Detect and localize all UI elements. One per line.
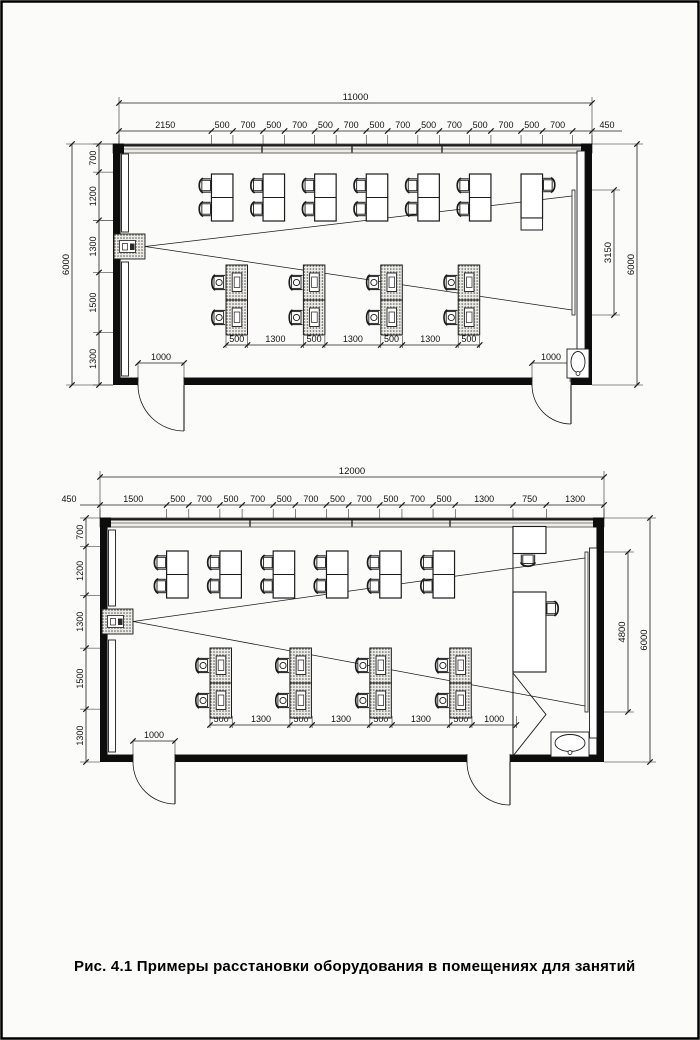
operator-chair [212, 310, 225, 325]
dim-label: 1500 [75, 669, 85, 689]
double-desk [273, 551, 295, 598]
dim-label: 700 [550, 120, 565, 130]
computer-desk [381, 265, 403, 300]
overall-dim-label: 3150 [603, 242, 614, 263]
sink-basin [571, 352, 585, 373]
operator-chair [196, 693, 209, 708]
dim-label: 1500 [88, 293, 98, 313]
dim-label: 700 [410, 494, 425, 504]
computer-desk [303, 300, 325, 335]
operator-chair [276, 658, 289, 673]
dim-label: 1300 [265, 334, 285, 344]
chair [314, 556, 326, 570]
dim-label: 1200 [88, 186, 98, 206]
computer-desk [226, 300, 248, 335]
dim-label: 500 [307, 334, 322, 344]
operator-chair [356, 693, 369, 708]
double-desk [167, 551, 189, 598]
dim-label: 1300 [75, 726, 85, 746]
plan-top-11000: 2150500700500700500700500700500700500700… [61, 92, 643, 431]
chair [421, 579, 433, 593]
dim-label: 700 [447, 120, 462, 130]
double-desk [433, 551, 455, 598]
computer-desk [381, 300, 403, 335]
wall-board [109, 640, 116, 752]
chair [354, 179, 366, 193]
double-desk [326, 551, 348, 598]
chair [208, 579, 220, 593]
chair [406, 202, 418, 216]
dim-label: 500 [461, 334, 476, 344]
dim-label: 1200 [75, 561, 85, 581]
operator-chair [436, 658, 449, 673]
door-arc [532, 385, 571, 424]
dim-label: 500 [330, 494, 345, 504]
dim-label: 700 [292, 120, 307, 130]
operator-chair [212, 275, 225, 290]
dim-label: 1300 [75, 612, 85, 632]
dim-label: 500 [215, 120, 230, 130]
door-arc [467, 762, 510, 805]
projector-lens [130, 244, 135, 251]
overhang-dim-label: 450 [61, 494, 76, 504]
projection-screen [572, 190, 575, 315]
board-right [577, 151, 585, 350]
dim-label: 500 [369, 120, 384, 130]
chair [251, 202, 263, 216]
double-desk [211, 174, 233, 221]
dim-label: 1300 [331, 714, 351, 724]
dim-label: 450 [599, 120, 614, 130]
double-desk [315, 174, 337, 221]
dim-label: 1300 [420, 334, 440, 344]
chair [154, 556, 166, 570]
double-desk [220, 551, 242, 598]
dim-label: 1300 [474, 494, 494, 504]
computer-desk [370, 683, 392, 718]
dim-label: 500 [170, 494, 185, 504]
wall-board [122, 262, 129, 376]
dim-label: 500 [383, 494, 398, 504]
projector-lens [118, 619, 123, 626]
chair [314, 579, 326, 593]
sink-faucet [568, 751, 572, 755]
overall-dim-label: 12000 [339, 466, 365, 477]
chair [261, 556, 273, 570]
chair [261, 579, 273, 593]
dim-label: 500 [524, 120, 539, 130]
computer-desk [450, 683, 472, 718]
cabinet-desk [513, 527, 546, 554]
dim-label: 500 [277, 494, 292, 504]
chair [302, 202, 314, 216]
dim-label: 500 [229, 334, 244, 344]
sink-faucet [576, 372, 580, 376]
sink-basin [555, 735, 585, 752]
wall-right [597, 518, 604, 762]
door-arc [138, 385, 184, 431]
floor-plan-figure: 2150500700500700500700500700500700500700… [0, 0, 700, 1040]
computer-desk [303, 265, 325, 300]
double-desk [469, 174, 491, 221]
dim-label: 700 [197, 494, 212, 504]
dim-label: 700 [75, 525, 85, 540]
chair [368, 556, 380, 570]
board-right [590, 548, 598, 738]
chair [354, 202, 366, 216]
wall-left [113, 144, 120, 385]
projector-lens [111, 619, 116, 626]
projector-lens [123, 244, 128, 251]
projection-screen [585, 552, 588, 712]
dim-label: 700 [250, 494, 265, 504]
wall-board [122, 154, 129, 232]
dim-label: 1300 [411, 714, 431, 724]
overall-dim-label: 6000 [626, 254, 637, 275]
computer-desk [450, 648, 472, 683]
dim-label: 700 [303, 494, 318, 504]
operator-chair [367, 310, 380, 325]
wardrobe-triangle [513, 673, 546, 756]
operator-chair [367, 275, 380, 290]
teacher-chair [547, 602, 559, 616]
dim-label: 1300 [251, 714, 271, 724]
double-desk [366, 174, 388, 221]
teacher-desk-pedestal [521, 218, 543, 230]
dim-label: 700 [88, 151, 98, 166]
overall-dim-label: 4800 [617, 621, 628, 642]
chair [199, 179, 211, 193]
door-opening [532, 377, 571, 387]
overall-dim-label: 11000 [343, 92, 369, 103]
teacher-desk [513, 592, 546, 672]
dim-label: 500 [421, 120, 436, 130]
dim-label: 700 [344, 120, 359, 130]
chair [457, 179, 469, 193]
dim-label: 1300 [565, 494, 585, 504]
chair [251, 179, 263, 193]
teacher-chair [543, 178, 555, 192]
projection-line [145, 247, 572, 311]
plan-bottom-12000: 1500500700500700500700500700500700500130… [61, 466, 656, 805]
chair [199, 202, 211, 216]
computer-desk [210, 648, 232, 683]
dim-label: 750 [522, 494, 537, 504]
dim-label: 500 [223, 494, 238, 504]
computer-desk [290, 648, 312, 683]
dim-label: 700 [498, 120, 513, 130]
overall-dim-label: 6000 [639, 629, 650, 650]
computer-desk [458, 265, 480, 300]
chair [368, 579, 380, 593]
dim-label: 700 [395, 120, 410, 130]
chair [406, 179, 418, 193]
door-opening [133, 754, 175, 764]
chair [208, 556, 220, 570]
dim-label: 1300 [343, 334, 363, 344]
double-desk [380, 551, 402, 598]
dim-label: 1300 [88, 349, 98, 369]
wall-bottom [113, 378, 592, 385]
dim-label: 500 [384, 334, 399, 344]
computer-desk [290, 683, 312, 718]
dim-label: 2150 [155, 120, 175, 130]
operator-chair [356, 658, 369, 673]
operator-chair [436, 693, 449, 708]
wall-board [109, 530, 116, 606]
door-dim-label: 1000 [541, 352, 561, 362]
teacher-desk [521, 174, 543, 218]
computer-desk [226, 265, 248, 300]
operator-chair [444, 275, 457, 290]
dim-label: 500 [473, 120, 488, 130]
computer-desk [370, 648, 392, 683]
dim-label: 1300 [88, 236, 98, 256]
operator-chair [276, 693, 289, 708]
dim-label: 1000 [484, 714, 504, 724]
door-dim-label: 1000 [144, 730, 164, 740]
chair [302, 179, 314, 193]
operator-chair [196, 658, 209, 673]
chair [154, 579, 166, 593]
door-opening [138, 377, 184, 387]
chair [421, 556, 433, 570]
computer-desk [458, 300, 480, 335]
operator-chair [289, 275, 302, 290]
dim-label: 1500 [123, 494, 143, 504]
figure-page: 2150500700500700500700500700500700500700… [0, 0, 700, 1040]
operator-chair [444, 310, 457, 325]
cabinet-chair [521, 555, 535, 567]
dim-label: 500 [318, 120, 333, 130]
wall-left [100, 518, 107, 762]
operator-chair [289, 310, 302, 325]
door-dim-label: 1000 [151, 352, 171, 362]
door-arc [133, 762, 175, 804]
dim-label: 700 [357, 494, 372, 504]
dim-label: 500 [266, 120, 281, 130]
dim-label: 500 [437, 494, 452, 504]
wall-bottom [100, 755, 604, 762]
door-opening [467, 754, 510, 764]
double-desk [263, 174, 285, 221]
computer-desk [210, 683, 232, 718]
double-desk [418, 174, 440, 221]
dim-label: 700 [240, 120, 255, 130]
figure-caption: Рис. 4.1 Примеры расстановки оборудовани… [74, 958, 654, 975]
overall-dim-label: 6000 [61, 254, 72, 275]
